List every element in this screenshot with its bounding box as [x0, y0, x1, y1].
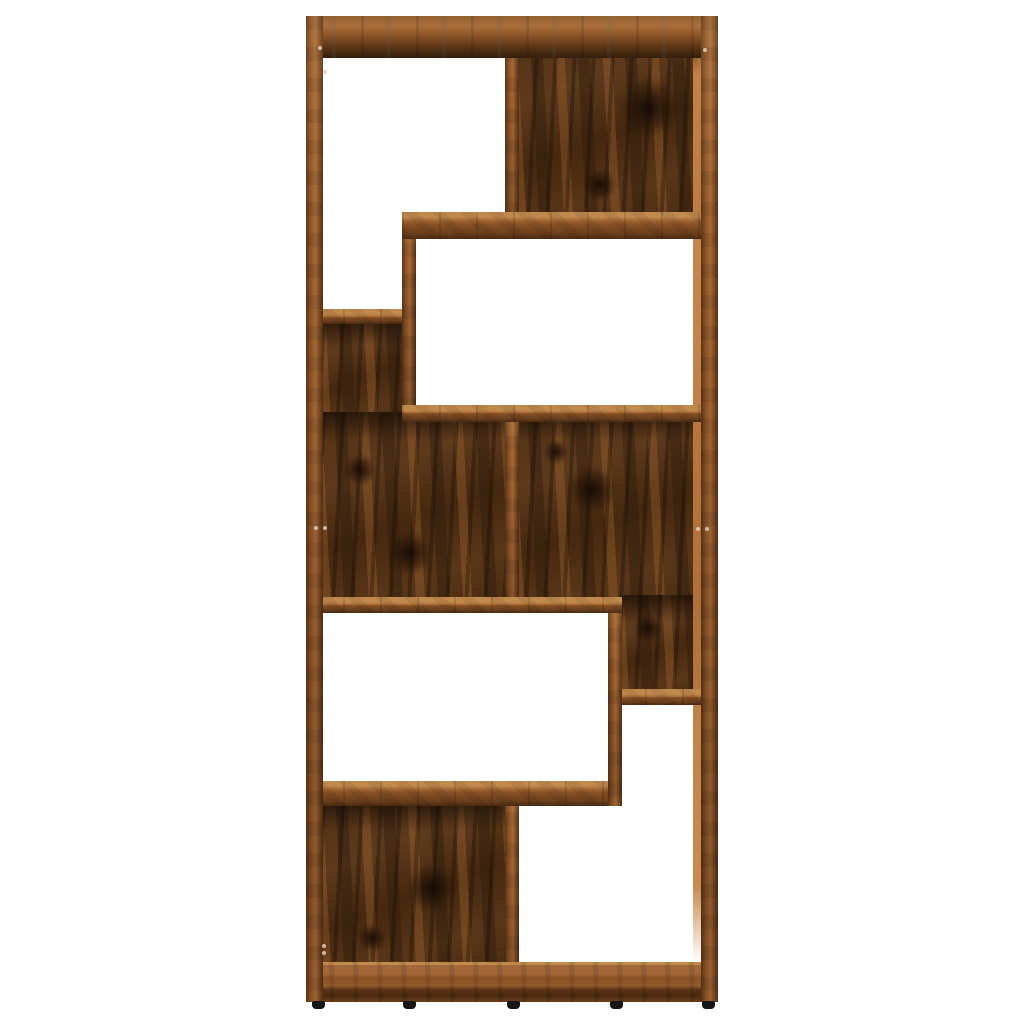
back-panel-mid-right-upper	[515, 412, 703, 602]
shelf-foot	[702, 1001, 715, 1009]
right-side-panel	[701, 16, 718, 1002]
wood-knot	[344, 454, 376, 486]
shelf-foot	[312, 1001, 325, 1009]
left-side-panel	[306, 16, 323, 1002]
shelf-upper-right	[402, 212, 718, 239]
wood-knot	[634, 614, 662, 642]
shelf-lower-left	[306, 781, 622, 806]
shelf-middle-upper	[402, 405, 718, 422]
cam-cover-dot	[318, 46, 322, 50]
top-board	[306, 16, 718, 58]
wood-knot	[544, 440, 568, 464]
cam-cover-dot	[323, 526, 327, 530]
wood-knot	[388, 531, 432, 575]
divider-middle	[505, 405, 519, 613]
divider-step-upper	[402, 212, 416, 422]
right-panel-inner-face	[693, 34, 701, 962]
cam-cover-dot	[322, 951, 326, 955]
cam-cover-dot	[703, 48, 707, 52]
cam-cover-dot	[705, 527, 709, 531]
shelf-middle-lower	[306, 597, 622, 613]
cam-cover-dot	[322, 944, 326, 948]
wood-knot	[619, 78, 679, 138]
wood-knot	[584, 169, 616, 201]
cam-cover-dot	[696, 527, 700, 531]
cam-cover-dot	[323, 70, 327, 74]
wood-knot	[358, 924, 386, 952]
cam-cover-dot	[314, 526, 318, 530]
wood-knot	[408, 864, 456, 912]
shelf-foot	[610, 1001, 623, 1009]
product-photo-bookshelf	[0, 0, 1024, 1024]
bottom-board	[306, 962, 718, 1002]
divider-step-lower	[608, 597, 622, 806]
shelf-foot	[507, 1001, 520, 1009]
wood-knot	[568, 466, 616, 514]
shelf-foot	[403, 1001, 416, 1009]
back-panel-mid-left-upper	[322, 318, 404, 424]
back-panel-mid-right-lower	[620, 595, 703, 695]
